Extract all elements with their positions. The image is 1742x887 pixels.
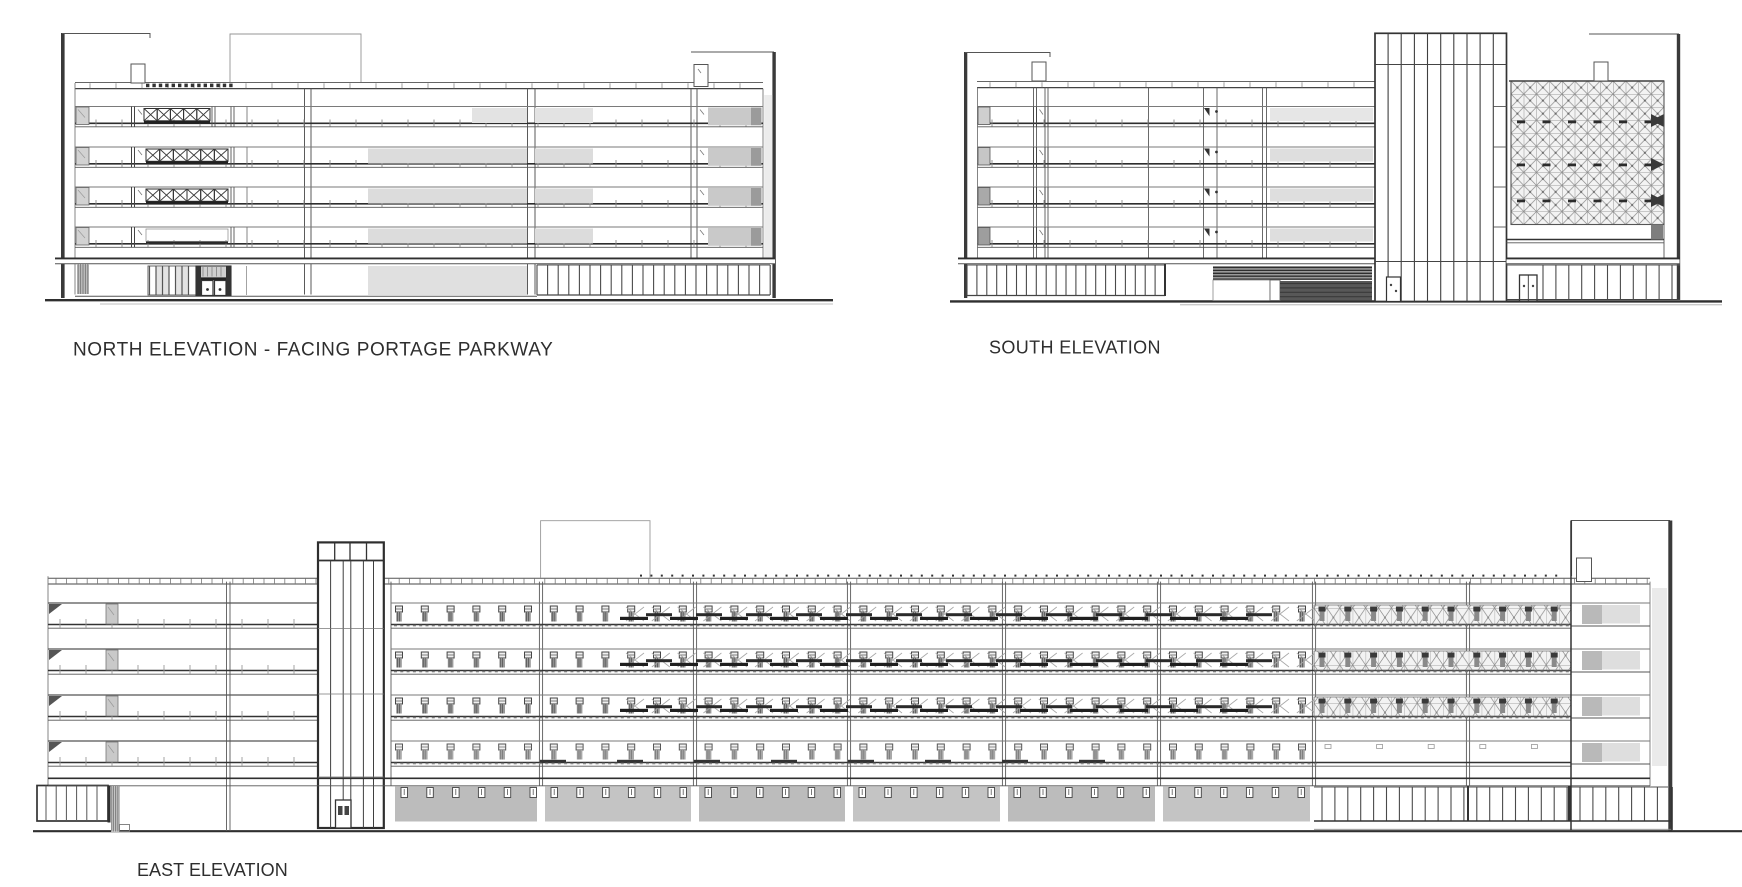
svg-text:SOUTH ELEVATION: SOUTH ELEVATION: [989, 338, 1161, 358]
svg-text:EAST ELEVATION: EAST ELEVATION: [137, 860, 288, 880]
svg-text:NORTH ELEVATION - FACING PORTA: NORTH ELEVATION - FACING PORTAGE PARKWAY: [73, 340, 553, 361]
